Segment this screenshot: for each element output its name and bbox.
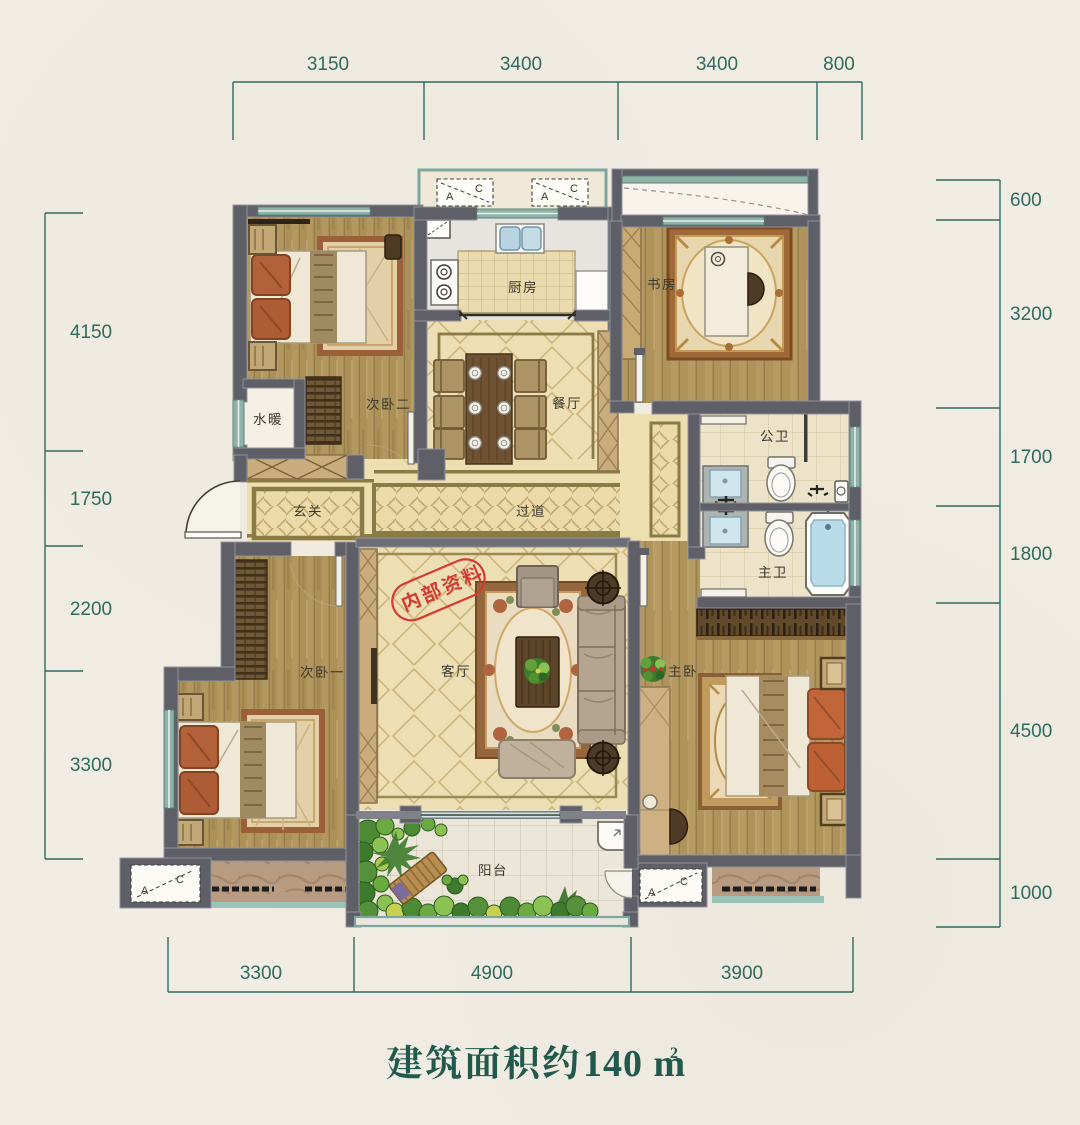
- svg-text:600: 600: [1010, 190, 1042, 211]
- svg-text:C: C: [475, 183, 483, 195]
- svg-text:3300: 3300: [240, 963, 282, 984]
- svg-text:3300: 3300: [70, 755, 112, 776]
- svg-text:3150: 3150: [307, 54, 349, 75]
- svg-text:3200: 3200: [1010, 304, 1052, 325]
- svg-text:C: C: [680, 876, 688, 888]
- svg-text:3400: 3400: [500, 54, 542, 75]
- svg-text:3900: 3900: [721, 963, 763, 984]
- svg-text:A: A: [648, 887, 656, 899]
- svg-text:4500: 4500: [1010, 721, 1052, 742]
- svg-text:C: C: [570, 183, 578, 195]
- svg-text:1800: 1800: [1010, 544, 1052, 565]
- svg-text:A: A: [141, 885, 149, 897]
- svg-text:4900: 4900: [471, 963, 513, 984]
- svg-text:1750: 1750: [70, 489, 112, 510]
- svg-text:1700: 1700: [1010, 447, 1052, 468]
- svg-text:2200: 2200: [70, 599, 112, 620]
- svg-text:1000: 1000: [1010, 883, 1052, 904]
- svg-text:3400: 3400: [696, 54, 738, 75]
- svg-text:C: C: [176, 874, 184, 886]
- svg-text:4150: 4150: [70, 322, 112, 343]
- svg-text:A: A: [541, 191, 549, 203]
- svg-text:2: 2: [670, 1045, 678, 1062]
- svg-text:800: 800: [823, 54, 855, 75]
- svg-text:A: A: [446, 191, 454, 203]
